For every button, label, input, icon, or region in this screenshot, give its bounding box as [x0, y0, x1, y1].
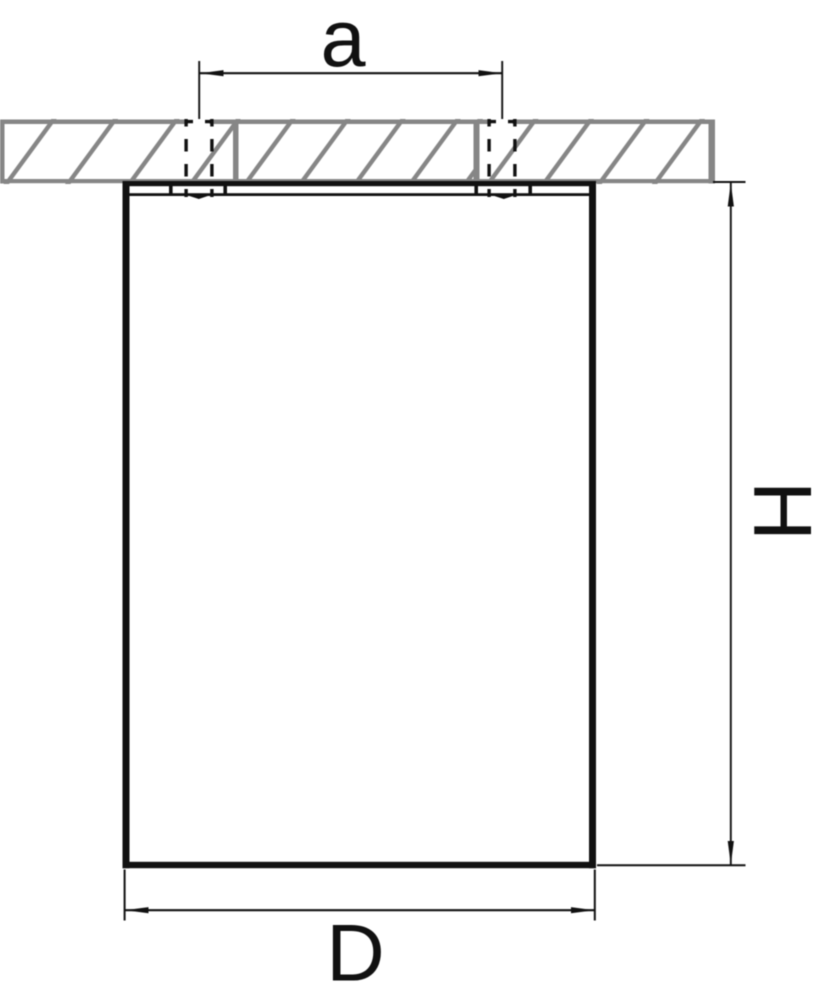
svg-text:D: D	[326, 909, 385, 999]
svg-text:H: H	[736, 481, 816, 541]
svg-text:a: a	[320, 0, 366, 84]
